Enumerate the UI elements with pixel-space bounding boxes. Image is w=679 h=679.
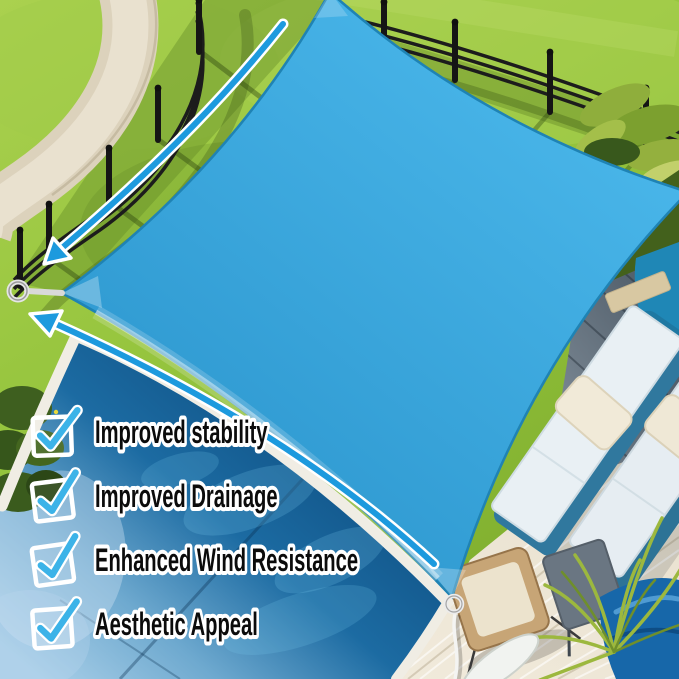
- left-strap: [27, 291, 62, 293]
- backyard-scene: [0, 0, 679, 679]
- product-feature-image: Improved stability Improved Drainage Enh…: [0, 0, 679, 679]
